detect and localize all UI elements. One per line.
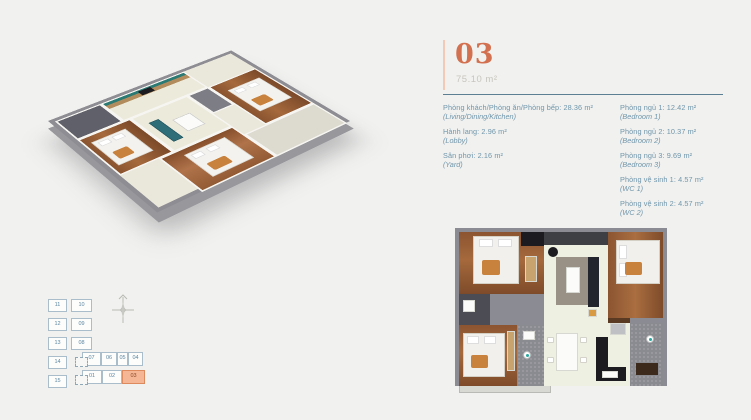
stool [588,309,597,317]
unit-area-label: 75.10 m² [456,74,498,85]
coffee-table [172,113,205,132]
room-column-right: Phòng ngủ 1: 12.42 m²(Bedroom 1)Phòng ng… [620,103,735,223]
room-entry: Phòng khách/Phòng ăn/Phòng bếp: 28.36 m²… [443,103,620,121]
bed-icon [91,129,154,166]
locator-unit-04[interactable]: 04 [128,352,143,366]
fridge [610,323,626,335]
wardrobe [521,232,544,246]
dining-area [544,323,596,386]
floor-slab [48,50,350,212]
bed-icon [463,333,505,377]
room-details: Phòng khách/Phòng ăn/Phòng bếp: 28.36 m²… [443,103,735,223]
locator-unit-12[interactable]: 12 [48,318,67,331]
living-area [544,245,608,323]
unit-locator: 111213141510090807060504010203 [44,296,162,392]
bed-icon [228,77,292,111]
locator-unit-05[interactable]: 05 [117,352,128,366]
bathroom-wc3 [630,323,663,386]
locator-unit-02[interactable]: 02 [102,370,122,384]
chair [547,357,554,363]
room-entry: Phòng ngủ 2: 10.37 m²(Bedroom 2) [620,127,735,145]
room-label-vi: Phòng ngủ 3: 9.69 m² [620,151,735,160]
elevator-shaft [75,375,88,385]
chair [547,337,554,343]
room-entry: Phòng ngủ 3: 9.69 m²(Bedroom 3) [620,151,735,169]
locator-unit-10[interactable]: 10 [71,299,92,312]
sofa-icon [588,257,599,307]
side-table [525,256,537,282]
divider-line [443,94,723,95]
bed-icon [616,240,660,284]
locator-unit-06[interactable]: 06 [101,352,117,366]
toilet-icon [523,351,531,359]
room-bedroom-3 [459,325,517,386]
room-entry: Phòng vệ sinh 2: 4.57 m²(WC 2) [620,199,735,217]
room-label-vi: Phòng ngủ 2: 10.37 m² [620,127,735,136]
chair [580,357,587,363]
closet [608,318,630,323]
room-entry: Sân phơi: 2.16 m²(Yard) [443,151,620,169]
kitchen-area [596,323,630,386]
yard-area [459,386,551,393]
room-label-vi: Hành lang: 2.96 m² [443,127,620,136]
room-label-en: (WC 2) [620,208,735,217]
coffee-table [566,267,580,293]
locator-unit-11[interactable]: 11 [48,299,67,312]
dining-table [556,333,578,371]
bathroom-wc2 [517,325,544,386]
chair [580,337,587,343]
bathroom-wc1 [459,294,490,325]
locator-unit-08[interactable]: 08 [71,337,92,350]
room-label-vi: Phòng ngủ 1: 12.42 m² [620,103,735,112]
room-label-en: (WC 1) [620,184,735,193]
room-label-en: (Lobby) [443,136,620,145]
locator-unit-14[interactable]: 14 [48,356,67,369]
stove-burners [602,371,618,378]
page-title-unit-number: 03 [455,40,495,70]
room-label-vi: Sân phơi: 2.16 m² [443,151,620,160]
elevator-shaft [75,357,88,367]
sink [463,300,475,312]
room-label-en: (Bedroom 1) [620,112,735,121]
accent-bar [443,40,445,90]
room-bedroom-2 [459,232,544,294]
locator-unit-03[interactable]: 03 [122,370,145,384]
floor-plan-page: 03 75.10 m² Phòng khách/Phòng ăn/Phòng b… [0,0,751,420]
compass-icon [108,293,138,327]
room-label-vi: Phòng vệ sinh 2: 4.57 m² [620,199,735,208]
room-label-en: (Bedroom 2) [620,136,735,145]
floor-plan-2d [455,228,667,393]
room-entry: Phòng vệ sinh 1: 4.57 m²(WC 1) [620,175,735,193]
floor-plan-3d [28,0,368,252]
room-label-en: (Bedroom 3) [620,160,735,169]
room-column-left: Phòng khách/Phòng ăn/Phòng bếp: 28.36 m²… [443,103,620,223]
plant [548,247,558,257]
room-label-vi: Phòng vệ sinh 1: 4.57 m² [620,175,735,184]
room-entry: Phòng ngủ 1: 12.42 m²(Bedroom 1) [620,103,735,121]
bench [507,331,515,371]
toilet-icon [646,335,654,343]
sink [523,331,535,340]
room-label-en: (Yard) [443,160,620,169]
bed-icon [473,236,519,284]
room-entry: Hành lang: 2.96 m²(Lobby) [443,127,620,145]
vanity [636,363,658,375]
locator-unit-13[interactable]: 13 [48,337,67,350]
room-label-en: (Living/Dining/Kitchen) [443,112,620,121]
locator-unit-15[interactable]: 15 [48,375,67,388]
balcony-ledge [544,232,608,245]
room-label-vi: Phòng khách/Phòng ăn/Phòng bếp: 28.36 m² [443,103,620,112]
room-bedroom-1 [608,232,663,318]
locator-unit-09[interactable]: 09 [71,318,92,331]
